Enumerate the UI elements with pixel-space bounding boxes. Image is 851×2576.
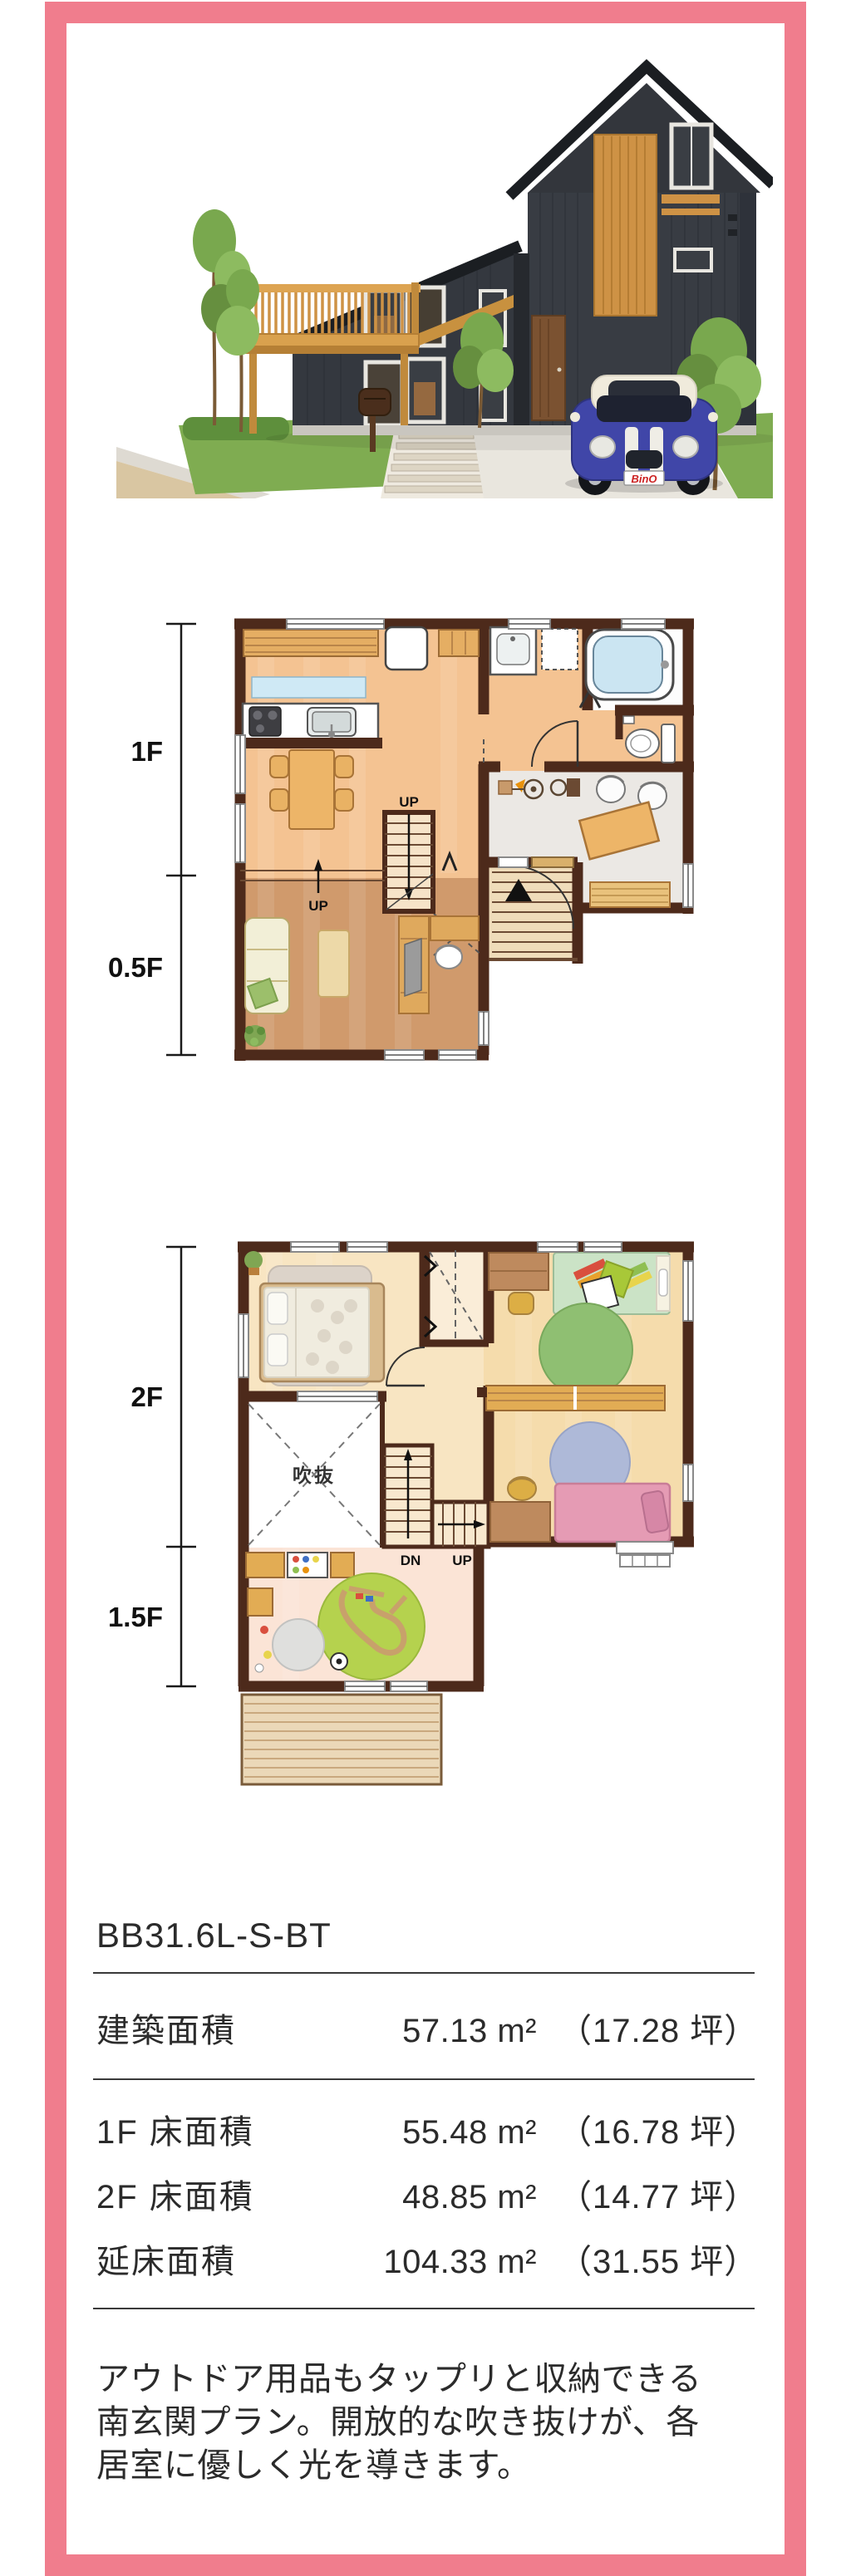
floor-area-row-total: 延床面積 104.33 m² （31.55 坪） bbox=[96, 2235, 756, 2283]
green-rug bbox=[539, 1303, 632, 1396]
floor-total-label: 延床面積 bbox=[96, 2235, 371, 2283]
stairs-up-label-2f: UP bbox=[452, 1553, 472, 1568]
floor-1f-tsubo: （16.78 坪） bbox=[537, 2105, 758, 2153]
wood-deck bbox=[242, 1695, 441, 1784]
void-label: 吹抜 bbox=[293, 1465, 336, 1486]
car-license-plate: BinO bbox=[631, 473, 657, 485]
floor-2f-label: 2F 床面積 bbox=[96, 2170, 371, 2218]
floor-1f-value: 55.48 m² bbox=[371, 2114, 537, 2152]
fridge bbox=[386, 627, 427, 670]
floor-2f-tsubo: （14.77 坪） bbox=[537, 2170, 758, 2218]
small-balcony bbox=[617, 1542, 673, 1567]
desk bbox=[430, 916, 479, 940]
step-up-label: UP bbox=[308, 898, 328, 914]
floor-area-row-2f: 2F 床面積 48.85 m² （14.77 坪） bbox=[96, 2170, 756, 2218]
floor-1f-label: 1F 床面積 bbox=[96, 2105, 371, 2153]
floor-plan-1f: UP UP bbox=[83, 598, 731, 1080]
divider-bottom bbox=[93, 2308, 755, 2309]
floor-2f-value: 48.85 m² bbox=[371, 2179, 537, 2216]
building-area-tsubo: （17.28 坪） bbox=[537, 2004, 758, 2052]
divider-top bbox=[93, 1972, 755, 1974]
building-area-label: 建築面積 bbox=[96, 2004, 371, 2052]
plan-model-code: BB31.6L-S-BT bbox=[96, 1916, 332, 1955]
floor-total-tsubo: （31.55 坪） bbox=[537, 2235, 758, 2283]
stove bbox=[249, 707, 281, 736]
floor-total-value: 104.33 m² bbox=[371, 2244, 537, 2281]
label-2f: 2F bbox=[130, 1381, 163, 1412]
kitchen-counter-top bbox=[252, 677, 366, 698]
stairs-down-label: DN bbox=[401, 1553, 421, 1568]
stairs-up-label: UP bbox=[399, 794, 419, 810]
bathtub bbox=[586, 630, 673, 699]
building-area-value: 57.13 m² bbox=[371, 2013, 537, 2050]
coffee-table bbox=[318, 930, 349, 997]
label-1-5f: 1.5F bbox=[108, 1602, 163, 1632]
plant-2f bbox=[244, 1251, 263, 1269]
label-1f: 1F bbox=[130, 736, 163, 767]
building-area-row: 建築面積 57.13 m² （17.28 坪） bbox=[96, 2004, 756, 2052]
front-door bbox=[532, 857, 573, 867]
floor-area-row-1f: 1F 床面積 55.48 m² （16.78 坪） bbox=[96, 2105, 756, 2153]
kids-desk-2 bbox=[490, 1502, 550, 1542]
tv bbox=[405, 939, 421, 996]
plan-description: アウトドア用品もタップリと収納できる南玄関プラン。開放的な吹き抜けが、各居室に優… bbox=[96, 2358, 718, 2487]
label-0-5f: 0.5F bbox=[108, 952, 163, 983]
dimension-line-1f bbox=[166, 624, 196, 1055]
beanbag bbox=[273, 1619, 324, 1671]
dimension-line-2f bbox=[166, 1247, 196, 1686]
divider-middle bbox=[93, 2078, 755, 2080]
house-exterior-render: BinO bbox=[116, 42, 773, 498]
floor-plan-2f: 吹抜 DN UP bbox=[83, 1221, 731, 1803]
washroom bbox=[490, 627, 578, 675]
